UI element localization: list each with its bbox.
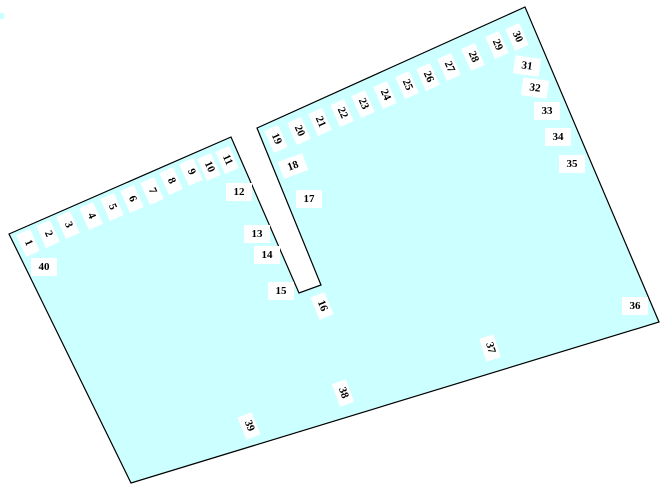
stall-label-12: 12 xyxy=(226,183,252,201)
lot-outline-layer xyxy=(0,0,670,488)
stall-label-14: 14 xyxy=(254,246,280,264)
stall-label-32: 32 xyxy=(521,77,549,98)
stall-label-34: 34 xyxy=(545,128,571,146)
stall-label-31: 31 xyxy=(513,55,541,76)
stall-label-40: 40 xyxy=(31,258,57,276)
stall-label-17: 17 xyxy=(296,190,322,208)
stall-label-13: 13 xyxy=(244,225,270,243)
lot-polygon xyxy=(9,7,659,483)
stall-label-36: 36 xyxy=(622,297,648,315)
stall-label-35: 35 xyxy=(559,155,585,173)
stall-label-33: 33 xyxy=(534,102,560,120)
stall-label-15: 15 xyxy=(268,282,294,300)
stray-mark xyxy=(0,13,4,19)
site-map: 1234567891011121314151617181920212223242… xyxy=(0,0,670,488)
